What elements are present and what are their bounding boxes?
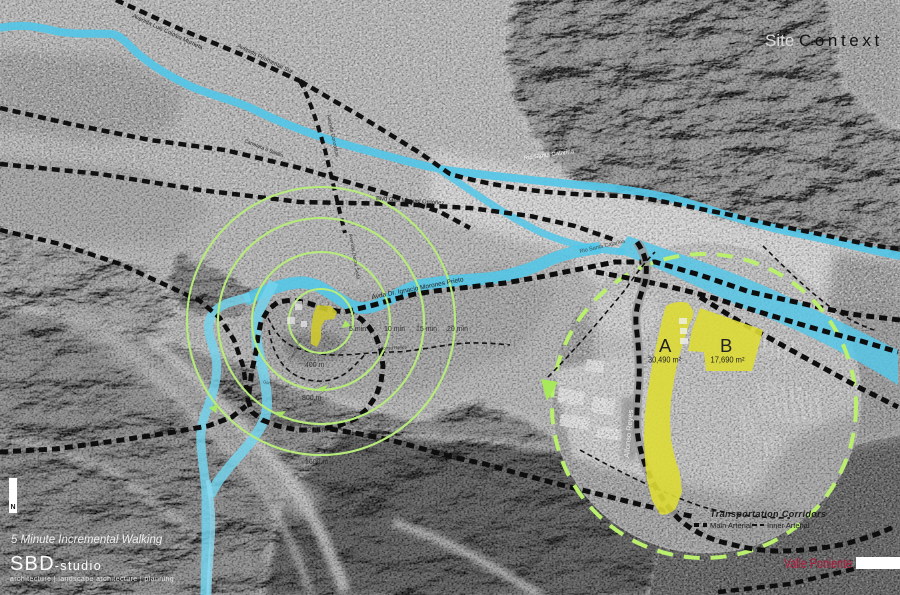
svg-text:15 min: 15 min [416, 326, 437, 333]
svg-text:20 min: 20 min [447, 326, 468, 333]
svg-text:N: N [11, 504, 16, 511]
svg-text:architecture | landscape archi: architecture | landscape architecture | … [10, 576, 174, 583]
svg-text:10 min: 10 min [384, 326, 405, 333]
svg-text:Site: Site [765, 31, 794, 50]
svg-text:Main Arterial: Main Arterial [710, 521, 752, 530]
svg-text:17,690 m²: 17,690 m² [711, 356, 745, 365]
svg-text:Inner Arterial: Inner Arterial [767, 521, 810, 530]
svg-text:800 m: 800 m [302, 395, 322, 402]
svg-text:Transportation Corridors: Transportation Corridors [710, 509, 826, 519]
svg-text:400 m: 400 m [305, 362, 325, 369]
svg-text:5 min: 5 min [349, 326, 366, 333]
svg-text:1200 m: 1200 m [304, 427, 328, 434]
svg-text:1600 m: 1600 m [305, 459, 329, 466]
svg-text:30,490 m²: 30,490 m² [648, 356, 681, 365]
svg-text:Valle Poniente: Valle Poniente [784, 556, 852, 571]
svg-text:Context: Context [799, 31, 883, 50]
svg-text:5 Minute Incremental Walking: 5 Minute Incremental Walking [11, 534, 163, 546]
svg-text:B: B [720, 335, 732, 356]
svg-text:A: A [659, 335, 672, 356]
